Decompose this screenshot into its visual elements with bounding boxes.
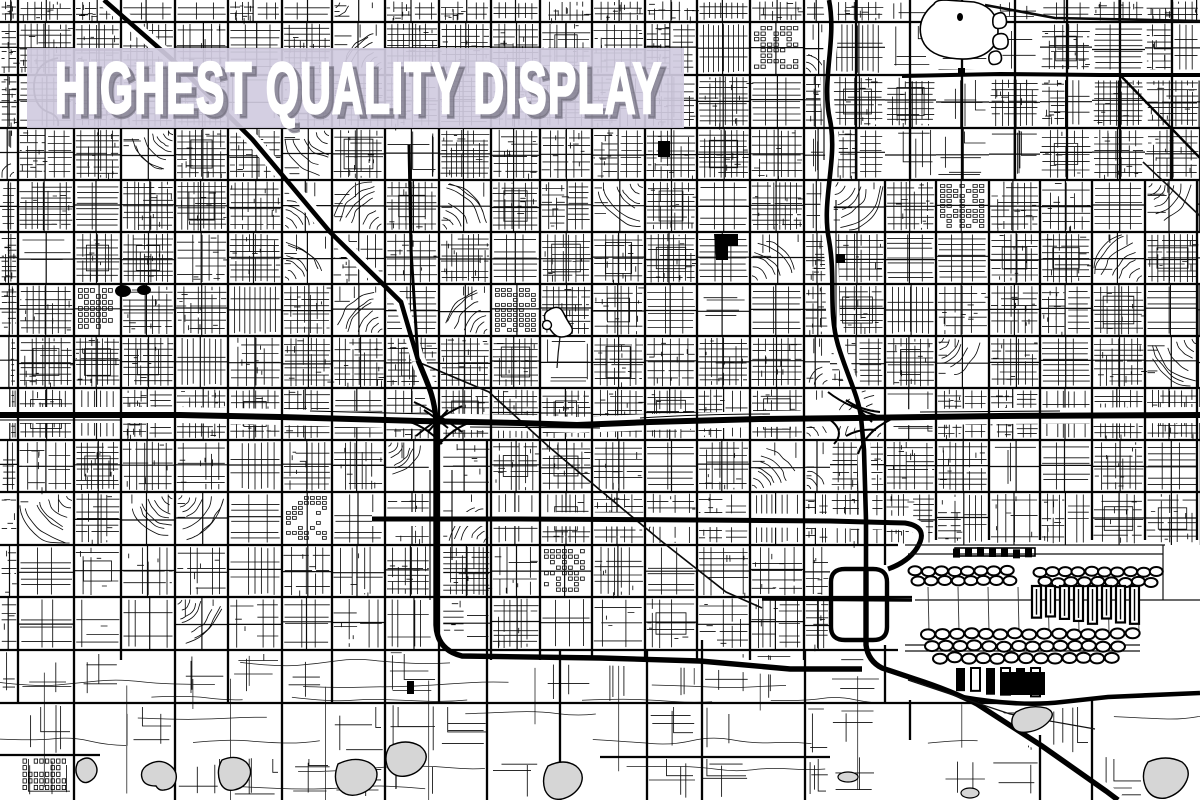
- svg-text:HIGHEST QUALITY DISPLAY: HIGHEST QUALITY DISPLAY: [55, 47, 662, 129]
